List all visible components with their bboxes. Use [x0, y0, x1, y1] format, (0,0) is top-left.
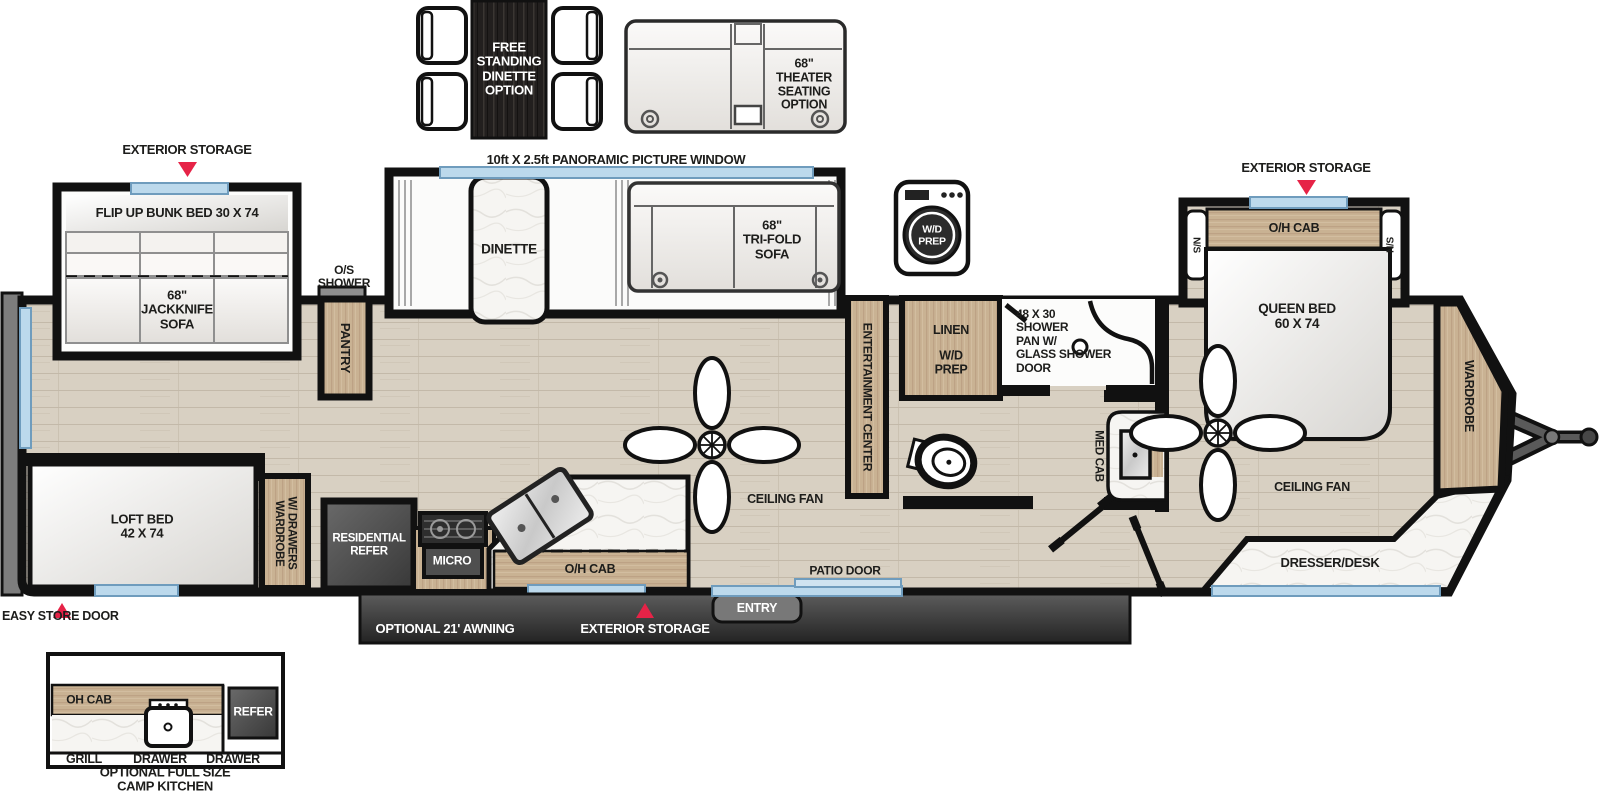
camp-sink-icon: [146, 708, 191, 746]
night-stand-left: [1186, 211, 1207, 279]
free-standing-dinette-option: [418, 1, 601, 138]
rv-floorplan-diagram: FREE STANDING DINETTE OPTION 68" THEATER…: [0, 0, 1600, 808]
dresser-window: [1212, 586, 1440, 596]
easy-store-marker-icon: [53, 603, 71, 618]
stove-icon: [420, 513, 486, 545]
theater-seating-option: [626, 21, 845, 132]
tri-fold-sofa: [629, 183, 839, 291]
wardrobe-front: [1437, 303, 1505, 492]
shower-drain-icon: [1073, 340, 1087, 354]
bedroom-window: [1250, 197, 1347, 208]
dinette-chair: [418, 8, 466, 63]
linen-closet: [902, 298, 1000, 398]
bath-sink-drain: [1133, 453, 1138, 458]
bunk-window: [131, 183, 228, 194]
camp-kitchen-inset: [48, 654, 283, 767]
dinette-sofa-slideout: [389, 172, 841, 322]
entertainment-center: [848, 298, 886, 496]
pantry: [321, 299, 369, 397]
camp-refrigerator: [229, 688, 277, 738]
storage-marker-front-icon: [1297, 180, 1316, 195]
bunk-slideout: [57, 187, 297, 356]
camp-counter: [52, 715, 223, 753]
microwave: [424, 547, 482, 577]
bath-wall: [903, 496, 1033, 509]
panoramic-window: [440, 167, 813, 178]
residential-refrigerator: [324, 501, 414, 589]
queen-bed: [1206, 249, 1390, 439]
wardrobe-with-drawers: [262, 476, 308, 588]
dinette-table: [471, 177, 547, 322]
bedroom-overhead-cabinet: [1207, 209, 1381, 248]
camp-overhead-cabinet: [52, 685, 223, 715]
rear-window: [20, 308, 31, 448]
dinette-chair: [553, 8, 601, 63]
patio-door-pane-inner: [795, 579, 901, 587]
shower-wall-left: [1000, 385, 1050, 396]
dinette-chair: [553, 74, 601, 129]
loft-bed: [30, 464, 256, 587]
shower-side-wall: [1155, 296, 1169, 397]
storage-marker-rear-icon: [178, 162, 197, 177]
loft-window: [95, 585, 178, 596]
floorplan-svg: [0, 0, 1600, 808]
dinette-chair: [418, 74, 466, 129]
entry-door-tab: [713, 595, 801, 622]
washer-dryer-icon: [896, 182, 968, 274]
dinette-option-table: [472, 1, 546, 138]
cup-tray-icon: [735, 106, 761, 124]
